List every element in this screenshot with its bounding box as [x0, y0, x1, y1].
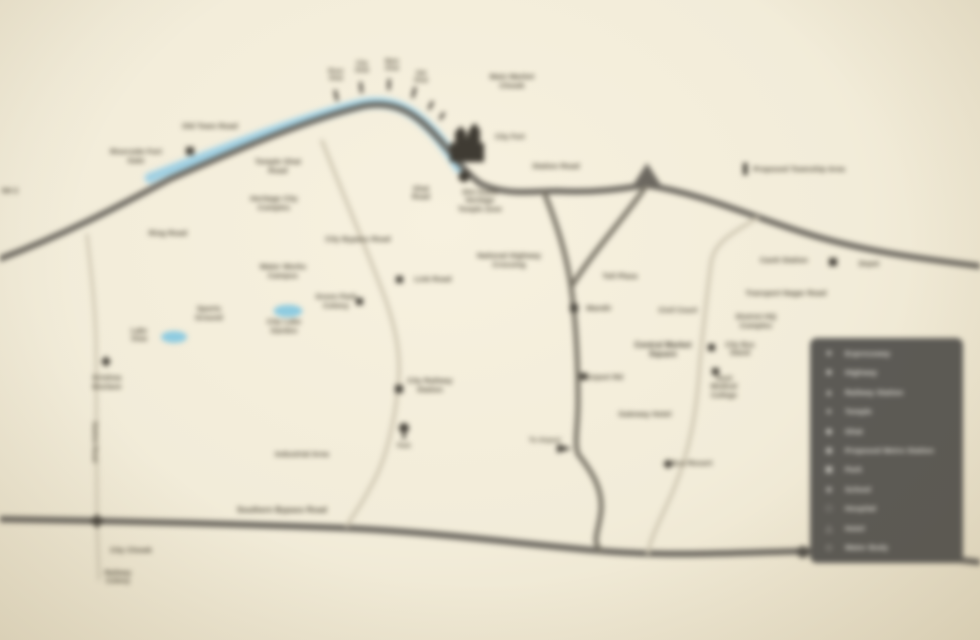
link-road-label: Link Road: [414, 276, 451, 285]
township-flag-icon: [743, 163, 748, 175]
branch-road: [573, 186, 646, 284]
krishna-enclave-line-2: Enclave: [92, 383, 121, 392]
temple-ghat-road-line-2: Road: [255, 167, 301, 176]
legend-row-3: ▲Railway Station: [822, 388, 953, 397]
station-road-north-line-1: Station Road: [532, 163, 579, 172]
ghat-2-line-2: Ghat: [355, 68, 369, 75]
ghat-marker-5: [428, 101, 435, 110]
temple-zone-line-2: Heritage: [458, 198, 502, 206]
civil-court-label: Civil Court: [658, 307, 697, 316]
lake-view-line-2: View: [131, 336, 147, 344]
bus-stand-icon: [708, 344, 715, 351]
city-chowk-line-1: City Chowk: [110, 547, 152, 556]
temple-zone-label: Shri KashiHeritageTemple Zone: [458, 190, 502, 215]
ring-road-label: Ring Road: [149, 230, 187, 239]
railway-colony-label: RailwayColony: [105, 570, 132, 587]
link-road-line-1: Link Road: [414, 276, 451, 285]
road-junction-blob: [797, 546, 809, 558]
civil-court-line-1: Civil Court: [658, 307, 697, 316]
map-artwork: NH 2Old Town RoadRiverside FortGateTempl…: [0, 0, 980, 640]
central-market-line-2: Square: [635, 350, 692, 359]
city-lake-garden-label: City LakeGarden: [267, 318, 301, 336]
riverside-fort-line-2: Gate: [110, 157, 162, 166]
legend-row-1: ★Expressway: [822, 349, 953, 358]
legend-label-7: Park: [845, 465, 862, 474]
old-town-road-line-1: Old Town Road: [182, 123, 238, 132]
nh-crossing-line-2: Crossing: [477, 261, 541, 270]
mandir-label: Mandir: [586, 305, 611, 314]
medical-college-line-2: Medical: [711, 384, 737, 392]
riverside-fort-label: Riverside FortGate: [110, 148, 162, 166]
legend-row-10: △Hotel: [822, 524, 953, 533]
to-airport-label: To Airport: [529, 437, 561, 445]
central-market-line-1: Central Market: [635, 341, 692, 350]
city-bus-stand-label: City BusStand: [725, 342, 754, 359]
triangle-icon: ▲: [822, 388, 836, 397]
square-icon: ■: [822, 368, 836, 377]
star-icon: ★: [822, 349, 836, 358]
green-park-colony-line-2: Colony: [315, 302, 356, 311]
toll-plaza-line-1: Toll Plaza: [602, 273, 637, 282]
station-icon: [395, 385, 403, 393]
city-bus-stand-line-1: City Bus: [725, 342, 754, 350]
legend-label-1: Expressway: [845, 349, 890, 358]
medical-college-line-3: College: [711, 392, 737, 400]
junction-marker-icon: [90, 514, 104, 528]
ghat-marker-3: [387, 79, 390, 90]
city-fort-line-1: City Fort: [495, 134, 525, 142]
nh-crossing-label: National HighwayCrossing: [477, 252, 541, 270]
district-hq-label: District HQComplex: [736, 313, 776, 331]
transport-nagar-label: Transport Nagar Road: [746, 290, 827, 299]
legend-row-5: ◆Ghat: [822, 427, 953, 436]
framed-diamond-icon: ◈: [822, 485, 836, 494]
legend-row-4: ●Temple: [822, 407, 953, 416]
southern-bypass-line-1: Southern Bypass Road: [237, 505, 327, 514]
gate-marker-icon: [633, 163, 661, 185]
ghat-road-label: GhatRoad: [412, 186, 430, 203]
legend-row-2: ■Highway: [822, 368, 953, 377]
lake-view-line-1: Lake: [131, 328, 147, 336]
eco-resort-line-1: Eco Resort: [672, 460, 713, 469]
legend-label-4: Temple: [845, 407, 872, 416]
sports-ground-line-2: Ground: [195, 314, 223, 323]
target-icon: ◉: [822, 446, 836, 455]
legend-row-6: ◉Proposed Metro Station: [822, 446, 953, 455]
gateway-hotel-line-1: Gateway Hotel: [619, 411, 672, 420]
depot-line-1: Depot: [859, 261, 879, 269]
nh-left-label: NH 2: [2, 188, 18, 196]
ghat-4-line-2: Ghat: [414, 78, 428, 85]
diamond-icon: ◆: [822, 427, 836, 436]
legend-label-9: Hospital: [845, 504, 876, 513]
legend-label-8: School: [845, 485, 871, 494]
college-icon: [712, 368, 719, 375]
park-line-1: Park: [397, 443, 410, 450]
map-legend: ★Expressway■Highway▲Railway Station●Temp…: [810, 338, 963, 563]
city-chowk-label: City Chowk: [110, 547, 152, 556]
hollow-diamond-icon: ◇: [822, 543, 836, 552]
krishna-enclave-label: KrishnaEnclave: [92, 374, 121, 392]
central-rural-road: [322, 141, 399, 526]
industrial-area-label: Industrial Area: [275, 451, 329, 460]
sports-ground-label: SportsGround: [195, 305, 223, 323]
legend-label-11: Water Body: [845, 543, 888, 552]
main-market-line-2: Chowk: [490, 82, 534, 91]
airport-road-label: Airport Rd: [585, 374, 623, 383]
ghat-marker-2: [359, 82, 363, 93]
gateway-hotel-label: Gateway Hotel: [619, 411, 672, 420]
to-airport-line-1: To Airport: [529, 437, 561, 445]
legend-label-6: Proposed Metro Station: [845, 446, 934, 455]
proposed-township-line-1: Proposed Township Area: [753, 166, 845, 175]
ghat-3-label: MainGhat: [385, 59, 399, 73]
station-road-north-label: Station Road: [532, 163, 579, 172]
legend-row-9: □Hospital: [822, 504, 953, 513]
fort-building-icon: [450, 123, 484, 162]
ghat-marker-4: [411, 87, 417, 98]
toll-plaza-label: Toll Plaza: [602, 273, 637, 282]
temple-zone-line-3: Temple Zone: [458, 206, 502, 214]
park-tree-trunk: [403, 431, 406, 439]
ghat-4-label: OldGhat: [414, 71, 428, 85]
city-railway-station-line-2: Station: [407, 386, 452, 395]
location-map: NH 2Old Town RoadRiverside FortGateTempl…: [0, 0, 980, 640]
ghat-3-line-2: Ghat: [385, 66, 399, 73]
ghat-road-line-1: Ghat: [412, 186, 430, 194]
airport-road-line-1: Airport Rd: [585, 374, 623, 383]
pond-central: [274, 305, 303, 318]
ghat-road-line-2: Road: [412, 194, 430, 202]
hollow-triangle-icon: △: [822, 524, 836, 533]
ghat-1-line-2: Ghat: [328, 76, 344, 83]
station-road-west-line-1: Station Road: [90, 421, 98, 462]
railway-colony-line-1: Railway: [105, 570, 132, 578]
fort-gate-icon: [186, 147, 194, 155]
mandir-line-1: Mandir: [586, 305, 611, 314]
ghat-1-label: RiverGhat: [328, 69, 344, 83]
central-market-label: Central MarketSquare: [635, 341, 692, 360]
riverside-highway: [0, 105, 980, 267]
heritage-complex-label: Heritage CityComplex: [250, 195, 298, 213]
legend-label-3: Railway Station: [845, 388, 903, 397]
hollow-square-icon: □: [822, 504, 836, 513]
lake-view-label: LakeView: [131, 328, 147, 345]
ghat-1-line-1: River: [328, 69, 344, 76]
medical-college-label: GovtMedicalCollege: [711, 376, 737, 401]
old-town-road-label: Old Town Road: [182, 123, 238, 132]
pond-west: [161, 331, 187, 343]
depot-label: Depot: [859, 261, 879, 269]
ghat-2-label: CityGhat: [355, 61, 369, 75]
legend-label-10: Hotel: [845, 524, 865, 533]
ghat-marker-6: [439, 112, 446, 120]
heritage-complex-line-2: Complex: [250, 204, 298, 213]
framed-square-icon: ▣: [822, 465, 836, 474]
southern-bypass-label: Southern Bypass Road: [237, 505, 327, 514]
water-works-label: Water WorksCampus: [260, 263, 307, 281]
cantt-station-label: Cantt Station: [760, 257, 808, 266]
legend-row-7: ▣Park: [822, 465, 953, 474]
ghat-4-line-1: Old: [414, 71, 428, 78]
city-bus-stand-line-2: Stand: [725, 350, 754, 358]
ghat-marker-1: [333, 90, 338, 101]
proposed-township-label: Proposed Township Area: [753, 166, 845, 175]
temple-ghat-road-label: Temple GhatRoad: [255, 158, 301, 176]
water-works-line-2: Campus: [260, 272, 307, 281]
colony-icon: [356, 298, 363, 305]
cantt-station-icon: [829, 258, 837, 266]
city-bypass-label: City Bypass Road: [325, 236, 390, 245]
city-fort-label: City Fort: [495, 134, 525, 142]
east-rural-road: [648, 218, 757, 553]
district-hq-line-2: Complex: [736, 322, 776, 331]
transport-nagar-line-1: Transport Nagar Road: [746, 290, 827, 299]
main-market-label: Main MarketChowk: [490, 73, 534, 91]
legend-row-11: ◇Water Body: [822, 543, 953, 552]
green-park-colony-label: Green ParkColony: [315, 293, 356, 311]
industrial-area-line-1: Industrial Area: [275, 451, 329, 460]
city-bypass-line-1: City Bypass Road: [325, 236, 390, 245]
nh-left-line-1: NH 2: [2, 188, 18, 196]
circle-icon: ●: [822, 407, 836, 416]
legend-row-8: ◈School: [822, 485, 953, 494]
cantt-station-line-1: Cantt Station: [760, 257, 808, 266]
enclave-diamond-icon: [101, 356, 111, 367]
central-road: [544, 192, 601, 550]
mandir-icon: [570, 304, 578, 312]
link-road-icon: [396, 276, 403, 283]
city-railway-station-label: City RailwayStation: [407, 377, 452, 395]
medical-college-line-1: Govt: [711, 376, 737, 384]
ghat-3-line-1: Main: [385, 59, 399, 66]
railway-colony-line-2: Colony: [105, 578, 132, 586]
station-road-west-label: Station Road: [90, 421, 98, 462]
airport-arrow-icon: [557, 444, 572, 453]
ghat-2-line-1: City: [355, 61, 369, 68]
city-lake-garden-line-2: Garden: [267, 327, 301, 336]
ring-road-line-1: Ring Road: [149, 230, 187, 239]
legend-label-5: Ghat: [845, 427, 863, 436]
temple-pin-icon: [459, 171, 470, 182]
temple-zone-line-1: Shri Kashi: [458, 190, 502, 198]
park-label: Park: [397, 443, 410, 450]
eco-resort-label: Eco Resort: [672, 460, 713, 469]
legend-label-2: Highway: [845, 368, 877, 377]
